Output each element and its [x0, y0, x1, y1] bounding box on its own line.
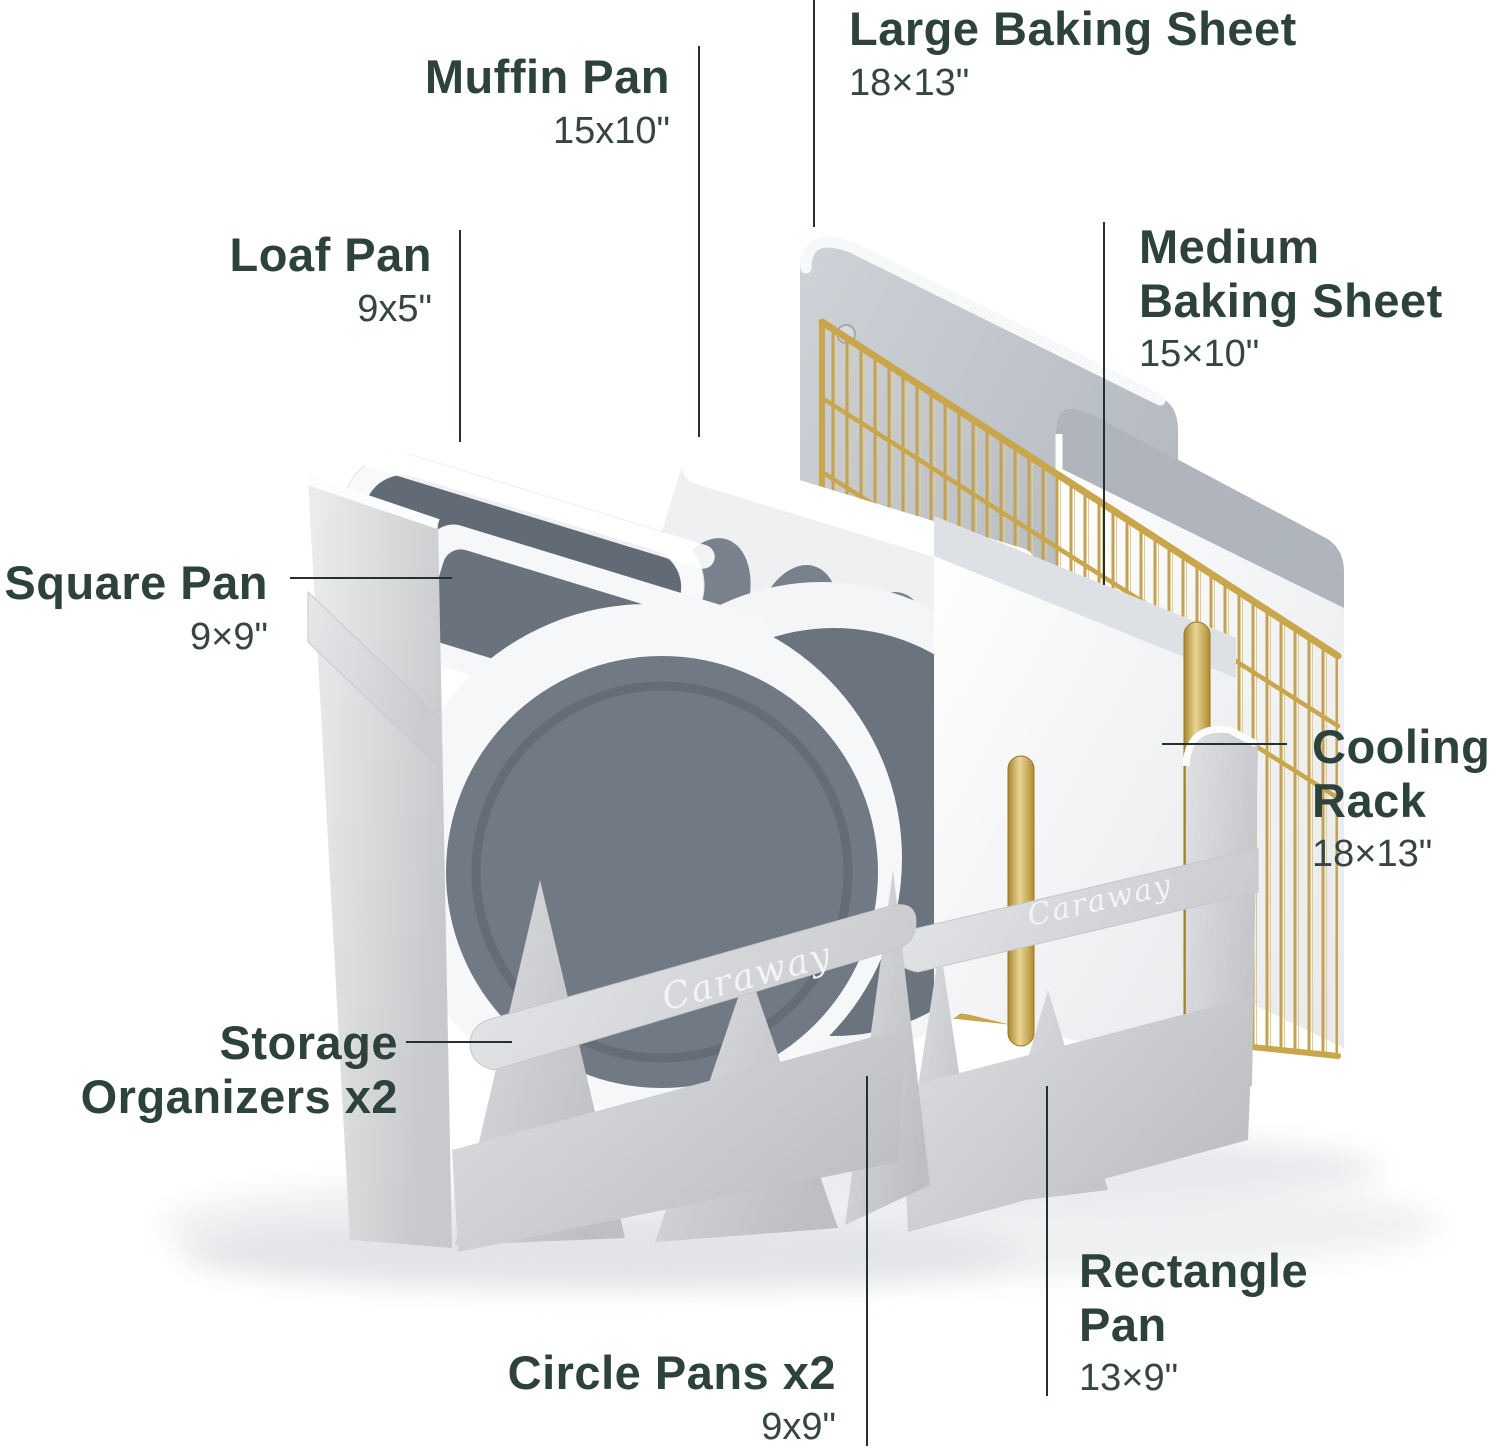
cooling-rack-name-line1: Cooling [1312, 720, 1500, 774]
circle-pans-name: Circle Pans x2 [470, 1346, 836, 1400]
medium-baking-sheet-size: 15×10" [1139, 331, 1469, 379]
callout-line-storage-organizers [406, 1041, 512, 1043]
loaf-pan-size: 9x5" [200, 286, 432, 334]
label-medium-baking-sheet: Medium Baking Sheet 15×10" [1139, 220, 1469, 379]
circle-pan-front-item [394, 604, 902, 1112]
cooling-rack-size: 18×13" [1312, 831, 1500, 879]
product-photo: Caraway Caraway [0, 0, 1500, 1453]
callout-line-rectangle-pan [1046, 1086, 1048, 1396]
callout-line-cooling-rack [1162, 743, 1287, 745]
label-loaf-pan: Loaf Pan 9x5" [200, 228, 432, 333]
storage-organizers-name-line2: Organizers x2 [30, 1070, 398, 1124]
large-baking-sheet-size: 18×13" [849, 60, 1329, 108]
square-pan-name: Square Pan [0, 556, 268, 610]
callout-line-large-baking-sheet [813, 0, 815, 227]
rectangle-pan-size: 13×9" [1079, 1355, 1379, 1403]
muffin-pan-size: 15x10" [400, 108, 670, 156]
callout-line-loaf-pan [459, 230, 461, 442]
left-organizer-side [308, 478, 452, 1248]
rectangle-pan-name-line2: Pan [1079, 1298, 1379, 1352]
loaf-pan-name: Loaf Pan [200, 228, 432, 282]
label-muffin-pan: Muffin Pan 15x10" [400, 50, 670, 155]
label-rectangle-pan: Rectangle Pan 13×9" [1079, 1244, 1379, 1403]
callout-line-muffin-pan [698, 46, 700, 437]
medium-baking-sheet-name-line2: Baking Sheet [1139, 274, 1469, 328]
callout-line-circle-pans [866, 1076, 868, 1446]
label-square-pan: Square Pan 9×9" [0, 556, 268, 661]
callout-line-medium-baking-sheet [1103, 222, 1105, 585]
square-pan-size: 9×9" [0, 614, 268, 662]
cooling-rack-name-line2: Rack [1312, 774, 1500, 828]
label-storage-organizers: Storage Organizers x2 [30, 1016, 398, 1123]
medium-baking-sheet-name-line1: Medium [1139, 220, 1469, 274]
label-circle-pans: Circle Pans x2 9x9" [470, 1346, 836, 1451]
label-large-baking-sheet: Large Baking Sheet 18×13" [849, 2, 1329, 107]
label-cooling-rack: Cooling Rack 18×13" [1312, 720, 1500, 879]
rectangle-pan-name-line1: Rectangle [1079, 1244, 1379, 1298]
storage-organizers-name-line1: Storage [30, 1016, 398, 1070]
circle-pans-size: 9x9" [470, 1404, 836, 1452]
callout-line-square-pan [290, 577, 452, 579]
large-baking-sheet-name: Large Baking Sheet [849, 2, 1329, 56]
muffin-pan-name: Muffin Pan [400, 50, 670, 104]
product-infographic: Caraway Caraway [0, 0, 1500, 1453]
